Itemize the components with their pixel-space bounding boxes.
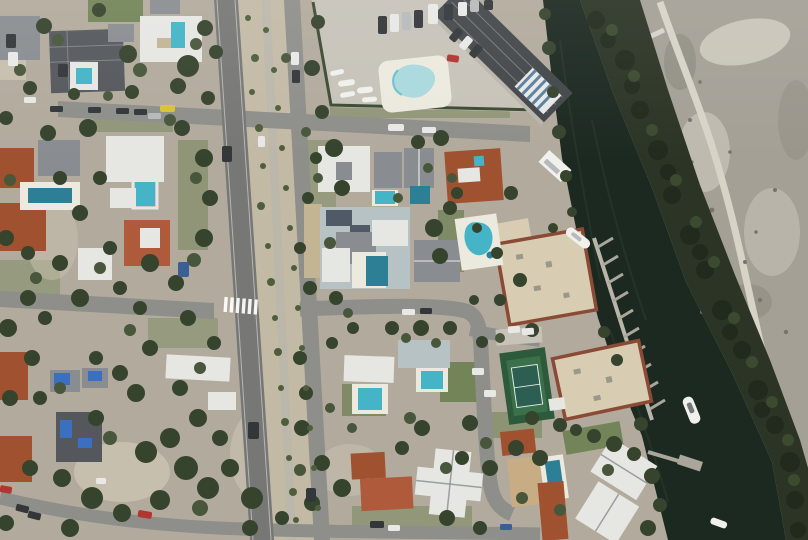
photo-haze [0, 0, 808, 540]
aerial-photo: Aerial drone photograph of a coastal res… [0, 0, 808, 540]
